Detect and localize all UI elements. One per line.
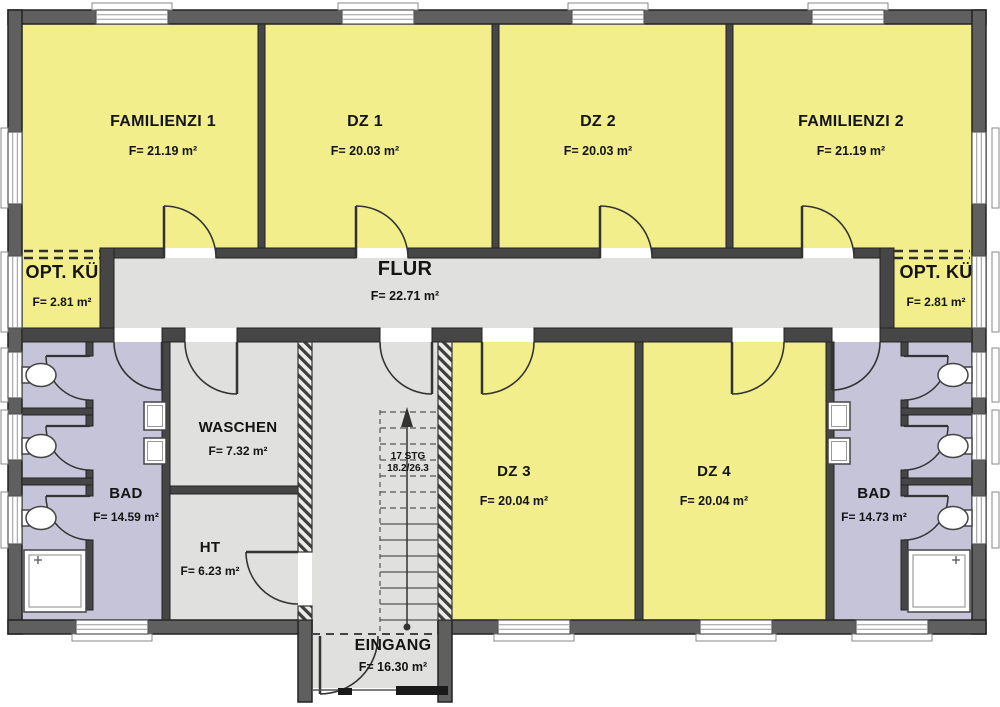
room-area: F= 21.19 m²: [63, 144, 263, 158]
toilet-icon: [26, 364, 56, 387]
room-label-dz-2: DZ 2 F= 20.03 m²: [498, 113, 698, 158]
room-area: F= 7.32 m²: [158, 445, 318, 458]
room-name: OPT. KÜ: [2, 262, 122, 282]
room-area: F= 6.23 m²: [150, 565, 270, 578]
room-area: F= 14.73 m²: [804, 511, 944, 524]
room-area: F= 20.04 m²: [424, 494, 604, 508]
room-label-ht: HT F= 6.23 m²: [150, 540, 270, 578]
toilet-icon: [938, 364, 968, 387]
shower-icon: [24, 550, 86, 612]
room-name: BAD: [56, 486, 196, 503]
toilet-icon: [26, 507, 56, 530]
room-label-waschen: WASCHEN F= 7.32 m²: [158, 420, 318, 458]
room-area: F= 21.19 m²: [751, 144, 951, 158]
room-label-familienzi-1: FAMILIENZI 1 F= 21.19 m²: [63, 113, 263, 158]
room-label-eingang: EINGANG F= 16.30 m²: [313, 637, 473, 674]
room-name: DZ 3: [424, 464, 604, 481]
room-name: FAMILIENZI 2: [751, 113, 951, 131]
room-area: F= 20.03 m²: [265, 144, 465, 158]
room-label-dz-1: DZ 1 F= 20.03 m²: [265, 113, 465, 158]
room-area: F= 2.81 m²: [2, 296, 122, 309]
room-area: F= 2.81 m²: [876, 296, 996, 309]
stair-start-dot: [404, 624, 411, 631]
toilet-icon: [938, 435, 968, 458]
room-name: DZ 1: [265, 113, 465, 131]
room-name: FLUR: [305, 258, 505, 280]
room-label-optku-right: OPT. KÜ F= 2.81 m²: [876, 262, 996, 310]
stair-steps-text: 17 STG: [362, 451, 454, 462]
room-area: F= 20.03 m²: [498, 144, 698, 158]
floor-plan-drawing: [0, 0, 1000, 707]
floor-plan: FAMILIENZI 1 F= 21.19 m² DZ 1 F= 20.03 m…: [0, 0, 1000, 707]
room-area: F= 16.30 m²: [313, 660, 473, 674]
room-label-bad-left: BAD F= 14.59 m²: [56, 486, 196, 524]
shower-icon: [908, 550, 970, 612]
room-label-optku-left: OPT. KÜ F= 2.81 m²: [2, 262, 122, 310]
room-label-bad-right: BAD F= 14.73 m²: [804, 486, 944, 524]
toilet-icon: [26, 435, 56, 458]
room-area: F= 22.71 m²: [305, 289, 505, 303]
room-label-dz-4: DZ 4 F= 20.04 m²: [624, 464, 804, 508]
room-name: EINGANG: [313, 637, 473, 655]
room-name: DZ 2: [498, 113, 698, 131]
room-label-dz-3: DZ 3 F= 20.04 m²: [424, 464, 604, 508]
room-name: HT: [150, 540, 270, 557]
room-area: F= 14.59 m²: [56, 511, 196, 524]
room-label-flur: FLUR F= 22.71 m²: [305, 258, 505, 303]
room-name: WASCHEN: [158, 420, 318, 437]
room-name: FAMILIENZI 1: [63, 113, 263, 131]
room-name: OPT. KÜ: [876, 262, 996, 282]
room-label-familienzi-2: FAMILIENZI 2 F= 21.19 m²: [751, 113, 951, 158]
room-name: DZ 4: [624, 464, 804, 481]
room-area: F= 20.04 m²: [624, 494, 804, 508]
room-name: BAD: [804, 486, 944, 503]
